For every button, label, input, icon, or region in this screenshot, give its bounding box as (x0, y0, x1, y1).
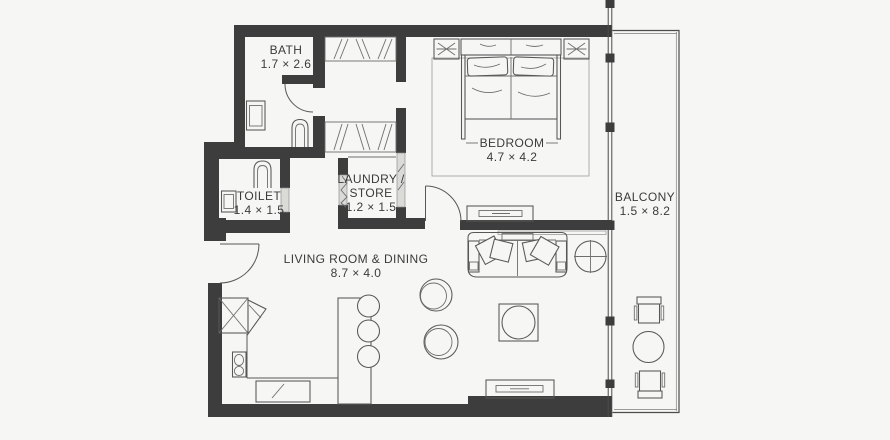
balcony-chair-top-icon (634, 297, 663, 323)
wall-bath-left (234, 25, 245, 151)
laundry-label-line1: LAUNDRY / (337, 172, 404, 186)
mullion-icon (606, 123, 615, 133)
nightstand-right-icon (564, 39, 589, 59)
bar-stools (358, 295, 380, 368)
wall-left-lower (208, 283, 222, 417)
bar-stool-icon (358, 320, 380, 342)
bedroom-dims: 4.7 × 4.2 (487, 150, 538, 164)
toilet-dims: 1.4 × 1.5 (234, 203, 285, 217)
coffee-table-icon (499, 304, 538, 341)
balcony-table-icon (633, 332, 664, 363)
mullion-icon (606, 221, 615, 231)
kitchen-sink-icon (233, 352, 247, 377)
wall-toilet-bottom (206, 220, 290, 233)
kitchen-counter (247, 334, 338, 378)
balcony-railing (613, 31, 680, 413)
bedroom-tv-console-icon (467, 206, 533, 221)
wardrobe-top-icon (325, 37, 396, 61)
bath-washbasin-icon (247, 101, 266, 130)
bath-door-icon (285, 84, 313, 112)
laundry-label-line2: STORE (349, 186, 392, 200)
glazed-wall (606, 0, 615, 417)
wall-top (234, 25, 612, 37)
round-side-table-icon (574, 240, 607, 273)
bar-stool-icon (358, 346, 380, 368)
bedroom-door-icon (426, 186, 462, 222)
wall-bath-corridor (313, 37, 325, 88)
wall-closet-right-top (396, 35, 406, 82)
wall-divider-left (338, 218, 425, 229)
mullion-icon (606, 54, 615, 63)
refrigerator-icon (219, 298, 248, 333)
floor-plan: BATH 1.7 × 2.6 TOILET 1.4 × 1.5 LAUNDRY … (0, 0, 890, 440)
living-room-label: LIVING ROOM & DINING (284, 252, 429, 266)
bar-stool-icon (358, 295, 380, 317)
wall-bottom-left (208, 404, 470, 417)
mullion-icon (606, 380, 615, 389)
balcony-chair-bottom-icon (635, 371, 664, 398)
living-tv-unit-icon (486, 380, 554, 398)
mullion-icon (606, 0, 615, 8)
wall-toilet-right-upper (280, 157, 290, 188)
laundry-dims: 1.2 × 1.5 (346, 200, 397, 214)
bath-dims: 1.7 × 2.6 (261, 57, 312, 71)
bath-wc-icon (292, 120, 308, 148)
bath-label: BATH (270, 43, 303, 57)
toilet-wc-icon (254, 161, 271, 188)
pouf-icon (424, 325, 458, 359)
entry-door-icon (220, 244, 259, 283)
floor-plan-svg: BATH 1.7 × 2.6 TOILET 1.4 × 1.5 LAUNDRY … (0, 0, 890, 440)
wall-closet-right-mid (396, 108, 406, 153)
living-room-dims: 8.7 × 4.0 (331, 266, 382, 280)
wall-toilet-top (218, 147, 290, 159)
wardrobe-bottom-icon (325, 122, 396, 152)
wall-bath-partition (282, 75, 313, 84)
bedroom-label: BEDROOM (480, 136, 545, 150)
balcony-dims: 1.5 × 8.2 (620, 204, 671, 218)
corner-cabinet-icon (248, 300, 266, 334)
pouf-icon (420, 279, 452, 311)
wall-left-mid (204, 155, 219, 221)
balcony-label: BALCONY (615, 190, 675, 204)
sofa-icon (468, 233, 567, 278)
cooktop-icon (256, 381, 310, 402)
bed-icon (461, 39, 561, 139)
nightstand-left-icon (434, 39, 459, 59)
wall-bottom-right (468, 396, 612, 417)
toilet-label: TOILET (237, 189, 281, 203)
mullion-icon (606, 317, 615, 326)
walls (204, 25, 612, 417)
wall-bath-closet (313, 116, 325, 152)
